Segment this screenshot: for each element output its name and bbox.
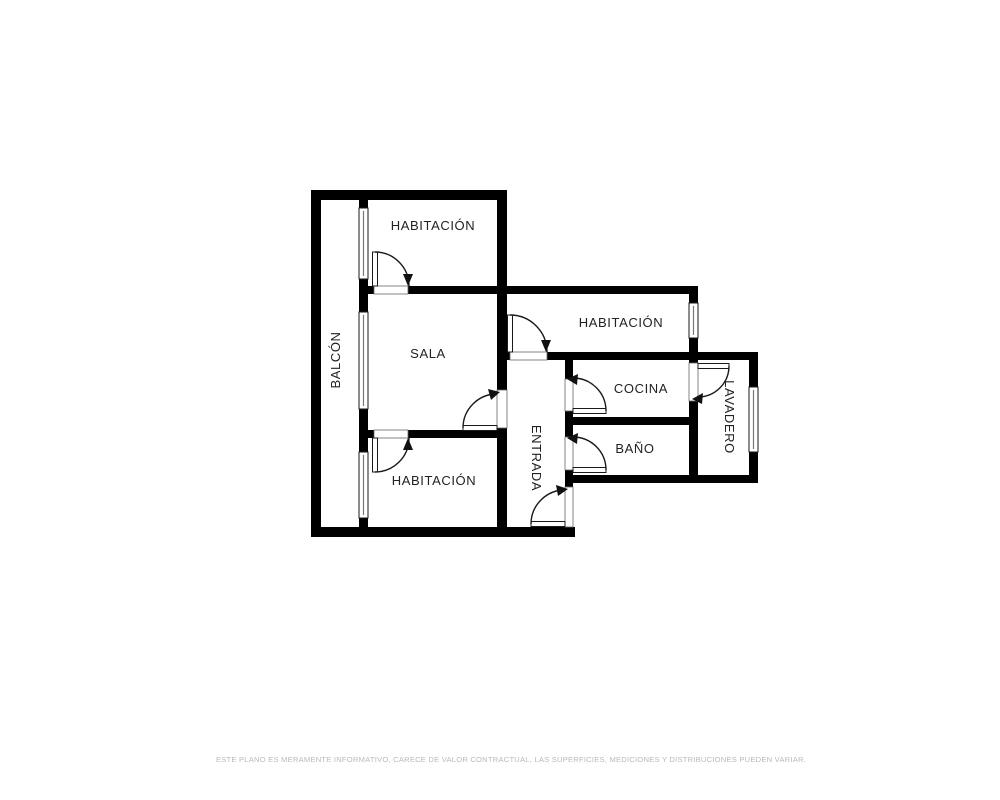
room-label-habitacion-right: HABITACIÓN <box>579 315 664 330</box>
wall-top <box>311 190 507 200</box>
wall-cocina-bano <box>565 417 698 425</box>
wall-sala-hab-bottom <box>359 430 374 438</box>
window-habitacion-right <box>689 303 698 338</box>
room-label-cocina: COCINA <box>614 381 668 396</box>
threshold-cocina <box>565 379 573 411</box>
window-lavadero <box>749 387 758 452</box>
window-balcon-habitacion-top <box>359 208 368 279</box>
threshold-entrada <box>565 487 573 527</box>
wall-cocina-lavadero <box>689 286 698 303</box>
door-habitacion-bottom <box>373 438 414 472</box>
threshold-sala <box>497 390 507 428</box>
wall-sala-right <box>497 428 507 537</box>
wall-lavadero-right <box>749 352 758 387</box>
room-label-balcon: BALCÓN <box>328 331 343 388</box>
wall-entrada-right <box>565 352 573 379</box>
wall-cocina-lavadero <box>689 338 698 363</box>
floorplan-canvas: HABITACIÓN BALCÓN SALA HABITACIÓN COCINA… <box>0 0 1000 800</box>
wall-balcon-divider <box>359 200 368 208</box>
threshold-habitacion-bottom <box>374 430 408 438</box>
room-label-lavadero: LAVADERO <box>722 380 737 454</box>
threshold-bano <box>565 437 573 470</box>
disclaimer-text: ESTE PLANO ES MERAMENTE INFORMATIVO, CAR… <box>216 755 806 764</box>
wall-sala-hab-bottom <box>408 430 507 438</box>
window-balcon-habitacion-bottom <box>359 452 368 518</box>
wall-hab-top-sala <box>408 286 698 294</box>
room-label-bano: BAÑO <box>615 441 654 456</box>
window-balcon-sala <box>359 312 368 409</box>
wall-lavadero-right <box>749 452 758 483</box>
door-habitacion-top <box>373 252 414 286</box>
wall-bottom <box>311 527 575 537</box>
wall-cocina-lavadero <box>689 401 698 483</box>
wall-sala-right <box>497 190 507 390</box>
door-habitacion-right <box>508 315 552 352</box>
room-label-habitacion-top: HABITACIÓN <box>391 218 476 233</box>
door-entrada-entry <box>531 485 568 527</box>
threshold-habitacion-top <box>374 286 408 294</box>
threshold-lavadero <box>689 363 698 401</box>
wall-balcon-divider <box>359 279 368 312</box>
door-sala <box>463 389 500 431</box>
room-label-entrada: ENTRADA <box>529 425 544 491</box>
room-label-sala: SALA <box>410 346 446 361</box>
threshold-habitacion-right <box>510 352 547 360</box>
room-label-habitacion-bottom: HABITACIÓN <box>392 473 477 488</box>
wall-balcon-divider <box>359 518 368 530</box>
wall-left <box>311 190 321 537</box>
wall-bano-bottom <box>565 475 758 483</box>
wall-hab-top-sala <box>359 286 374 294</box>
floorplan-svg: HABITACIÓN BALCÓN SALA HABITACIÓN COCINA… <box>0 0 1000 800</box>
